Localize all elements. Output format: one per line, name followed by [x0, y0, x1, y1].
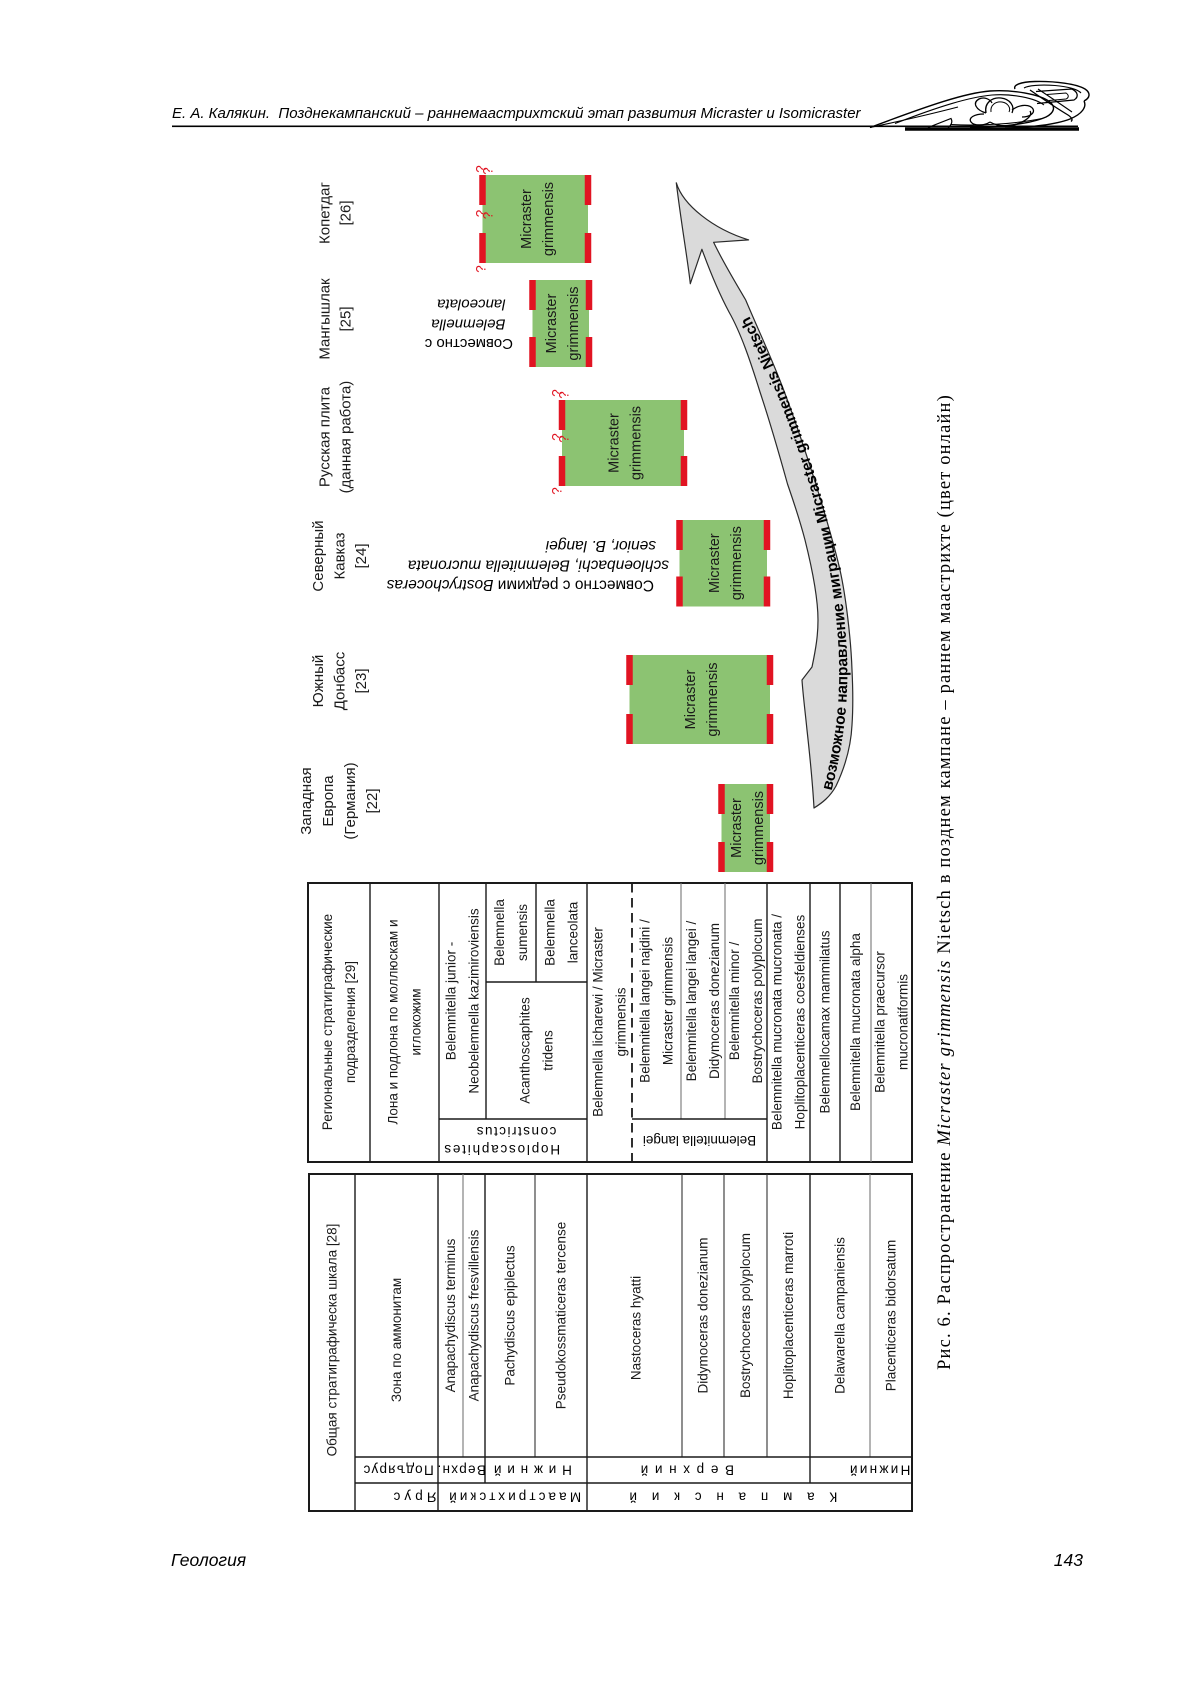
svg-text:Hoplitoplacenticeras coesfeldi: Hoplitoplacenticeras coesfeldienses — [793, 914, 808, 1129]
svg-text:?: ? — [481, 167, 496, 175]
svg-text:lanceolata: lanceolata — [437, 296, 505, 313]
svg-text:Nastoceras hyatti: Nastoceras hyatti — [629, 1276, 644, 1380]
svg-text:Acanthoscaphites: Acanthoscaphites — [518, 997, 533, 1104]
svg-text:Micraster: Micraster — [729, 798, 745, 858]
svg-text:Западная: Западная — [298, 767, 315, 834]
svg-text:grimmensis: grimmensis — [629, 406, 645, 480]
svg-text:[25]: [25] — [338, 306, 355, 331]
svg-text:Placenticeras bidorsatum: Placenticeras bidorsatum — [884, 1240, 899, 1392]
svg-text:Micraster: Micraster — [683, 670, 699, 730]
svg-text:[24]: [24] — [353, 543, 370, 568]
svg-text:подразделения [29]: подразделения [29] — [343, 961, 358, 1083]
svg-text:Belemnitella mucronata mucrona: Belemnitella mucronata mucronata / — [770, 914, 785, 1130]
svg-text:Didymoceras donezianum: Didymoceras donezianum — [696, 1237, 711, 1393]
svg-text:Общая стратиграфическа шкала [: Общая стратиграфическа шкала [28] — [325, 1224, 340, 1457]
svg-text:Delawarella campaniensis: Delawarella campaniensis — [833, 1237, 848, 1394]
svg-text:?: ? — [474, 265, 489, 273]
svg-text:Ярус: Ярус — [389, 1490, 436, 1505]
svg-text:grimmensis: grimmensis — [751, 791, 767, 865]
svg-text:Подъярус: Подъярус — [362, 1463, 433, 1478]
svg-text:Кампанский: Кампанский — [615, 1490, 838, 1505]
svg-text:Маастрихтский: Маастрихтский — [446, 1490, 581, 1505]
svg-text:Донбасс: Донбасс — [332, 651, 349, 710]
svg-text:grimmensis: grimmensis — [541, 182, 557, 256]
svg-text:grimmensis: grimmensis — [705, 662, 721, 736]
svg-text:иглокожим: иглокожим — [409, 989, 424, 1056]
svg-text:Нижний: Нижний — [488, 1463, 572, 1478]
svg-text:Bostrychoceras polyplocum: Bostrychoceras polyplocum — [738, 1233, 753, 1398]
svg-text:lanceolata: lanceolata — [566, 901, 581, 963]
svg-text:[26]: [26] — [338, 200, 355, 225]
svg-text:Кавказ: Кавказ — [332, 532, 349, 579]
svg-text:Совместно с редкими Bostrychoc: Совместно с редкими Bostrychoceras — [386, 577, 654, 594]
svg-text:senior, B. langei: senior, B. langei — [545, 538, 656, 555]
svg-text:Мангышлак: Мангышлак — [317, 278, 334, 360]
svg-text:Русская плита: Русская плита — [317, 386, 334, 487]
svg-text:Европа: Европа — [320, 775, 337, 827]
svg-text:Belemnellocamax mammilatus: Belemnellocamax mammilatus — [818, 930, 833, 1113]
svg-text:Didymoceras donezianum: Didymoceras donezianum — [707, 923, 722, 1079]
svg-text:Belemnella: Belemnella — [431, 316, 505, 333]
svg-text:Северный: Северный — [310, 520, 327, 591]
svg-text:Belemnella: Belemnella — [492, 899, 507, 966]
svg-text:143: 143 — [1054, 1550, 1083, 1570]
svg-text:Bostrychoceras polyplocum: Bostrychoceras polyplocum — [750, 918, 765, 1083]
svg-text:Micraster: Micraster — [519, 189, 535, 249]
svg-text:Neobelemnella kazimiroviensis: Neobelemnella kazimiroviensis — [467, 908, 482, 1094]
svg-text:Зона по аммонитам: Зона по аммонитам — [389, 1278, 404, 1402]
svg-text:sumensis: sumensis — [515, 904, 530, 961]
svg-text:[22]: [22] — [364, 788, 381, 813]
svg-text:grimmensis: grimmensis — [729, 526, 745, 600]
svg-text:Anapachydiscus fresvillensis: Anapachydiscus fresvillensis — [467, 1229, 482, 1401]
svg-text:Pseudokossmaticeras tercense: Pseudokossmaticeras tercense — [554, 1222, 569, 1410]
svg-text:(данная работа): (данная работа) — [338, 381, 355, 494]
svg-text:Совместно с: Совместно с — [424, 335, 513, 352]
svg-text:Верхний: Верхний — [634, 1463, 734, 1478]
svg-text:Anapachydiscus terminus: Anapachydiscus terminus — [443, 1238, 458, 1392]
svg-text:Belemnitella mucronata alpha: Belemnitella mucronata alpha — [848, 933, 863, 1111]
svg-text:?: ? — [557, 435, 572, 443]
svg-text:Belemnitella langei: Belemnitella langei — [643, 1133, 756, 1148]
svg-text:?: ? — [557, 391, 572, 399]
svg-text:Нижний: Нижний — [848, 1463, 911, 1478]
svg-text:Micraster: Micraster — [544, 294, 560, 354]
svg-text:Micraster grimmensis: Micraster grimmensis — [661, 937, 676, 1066]
svg-text:Micraster: Micraster — [707, 533, 723, 593]
svg-text:Геология: Геология — [171, 1550, 246, 1570]
svg-text:?: ? — [550, 487, 565, 495]
svg-text:[23]: [23] — [353, 668, 370, 693]
svg-text:Лона и подлона по моллюскам и: Лона и подлона по моллюскам и — [386, 920, 401, 1125]
svg-text:Верхн.: Верхн. — [436, 1463, 486, 1478]
svg-text:constrictus: constrictus — [475, 1124, 556, 1139]
svg-text:schloenbachi, Belemnitella muc: schloenbachi, Belemnitella mucronata — [408, 557, 669, 574]
svg-text:Belemnella licharewi / Micrast: Belemnella licharewi / Micraster — [591, 927, 606, 1117]
svg-text:Belemnitella langei najdini /: Belemnitella langei najdini / — [638, 919, 653, 1083]
svg-text:Hoploscaphites: Hoploscaphites — [443, 1142, 561, 1157]
svg-text:Копетдаг: Копетдаг — [317, 181, 334, 244]
svg-text:Belemnitella minor /: Belemnitella minor / — [727, 941, 742, 1060]
svg-text:grimmensis: grimmensis — [566, 286, 582, 360]
svg-text:grimmensis: grimmensis — [614, 987, 629, 1056]
svg-text:Belemnitella praecursor: Belemnitella praecursor — [873, 951, 888, 1093]
svg-text:(Германия): (Германия) — [342, 762, 359, 839]
svg-text:Belemnitella langei langei /: Belemnitella langei langei / — [684, 920, 699, 1081]
svg-text:Рис. 6. Распространение Micras: Рис. 6. Распространение Micraster grimme… — [935, 394, 955, 1370]
svg-text:Южный: Южный — [310, 655, 327, 708]
svg-text:Региональные стратиграфические: Региональные стратиграфические — [320, 914, 335, 1130]
svg-text:mucronatiformis: mucronatiformis — [896, 974, 911, 1070]
svg-text:Belemnella: Belemnella — [543, 899, 558, 966]
svg-text:Pachydiscus epiplectus: Pachydiscus epiplectus — [503, 1245, 518, 1386]
svg-text:Е. А. Калякин. Позднекампанск: Е. А. Калякин. Позднекампанский – раннем… — [172, 105, 862, 122]
svg-text:Hoplitoplacenticeras marroti: Hoplitoplacenticeras marroti — [781, 1232, 796, 1399]
svg-text:tridens: tridens — [541, 1030, 556, 1071]
svg-text:Belemnitella junior -: Belemnitella junior - — [444, 942, 459, 1061]
svg-text:?: ? — [481, 212, 496, 220]
svg-text:Micraster: Micraster — [607, 413, 623, 473]
